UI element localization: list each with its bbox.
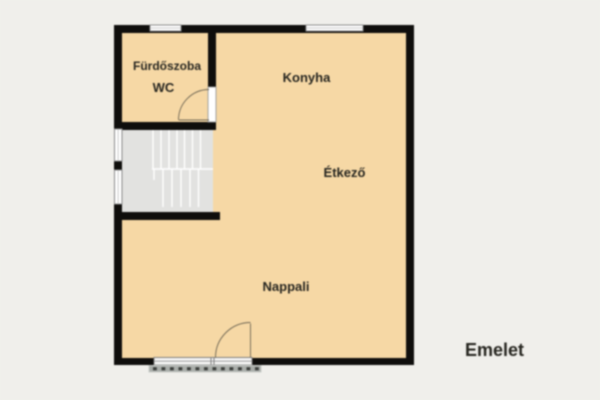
svg-text:WC: WC [153, 80, 175, 95]
svg-text:Nappali: Nappali [263, 279, 310, 294]
svg-text:Emelet: Emelet [465, 340, 524, 360]
svg-text:Fürdőszoba: Fürdőszoba [133, 59, 201, 73]
svg-text:Konyha: Konyha [283, 70, 331, 85]
svg-text:Étkező: Étkező [324, 165, 366, 180]
